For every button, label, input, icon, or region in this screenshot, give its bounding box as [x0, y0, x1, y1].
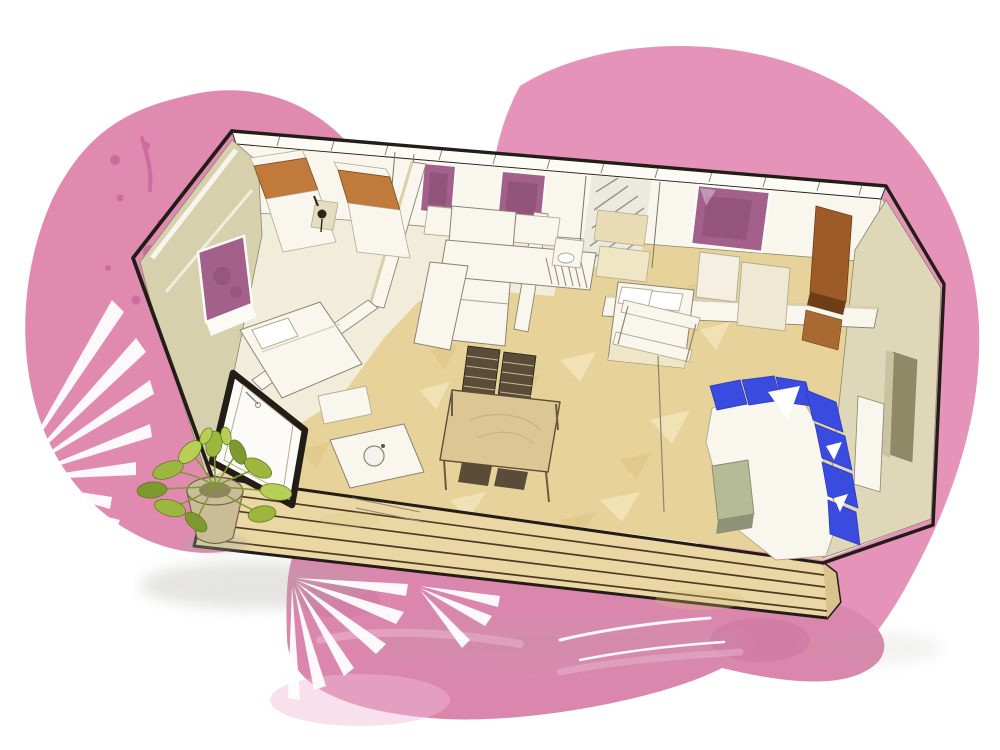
illustration-stage [0, 0, 1000, 750]
beige-closet-1 [737, 262, 790, 331]
beige-closet-2 [696, 252, 740, 302]
closet-shelf-2 [596, 246, 650, 282]
dining-chair-back-2 [498, 352, 536, 400]
closet-shelf-1 [594, 210, 648, 246]
right-wall-door [854, 396, 884, 492]
toilet-seat [558, 253, 574, 263]
basin [364, 446, 384, 466]
mobile-home [133, 131, 944, 618]
dining-chair-back-1 [462, 346, 500, 396]
faucet [381, 444, 385, 448]
mobile-home-floorplan-illustration [0, 0, 1000, 750]
master-bedroom-window [691, 185, 770, 252]
coffee-table [712, 460, 754, 534]
